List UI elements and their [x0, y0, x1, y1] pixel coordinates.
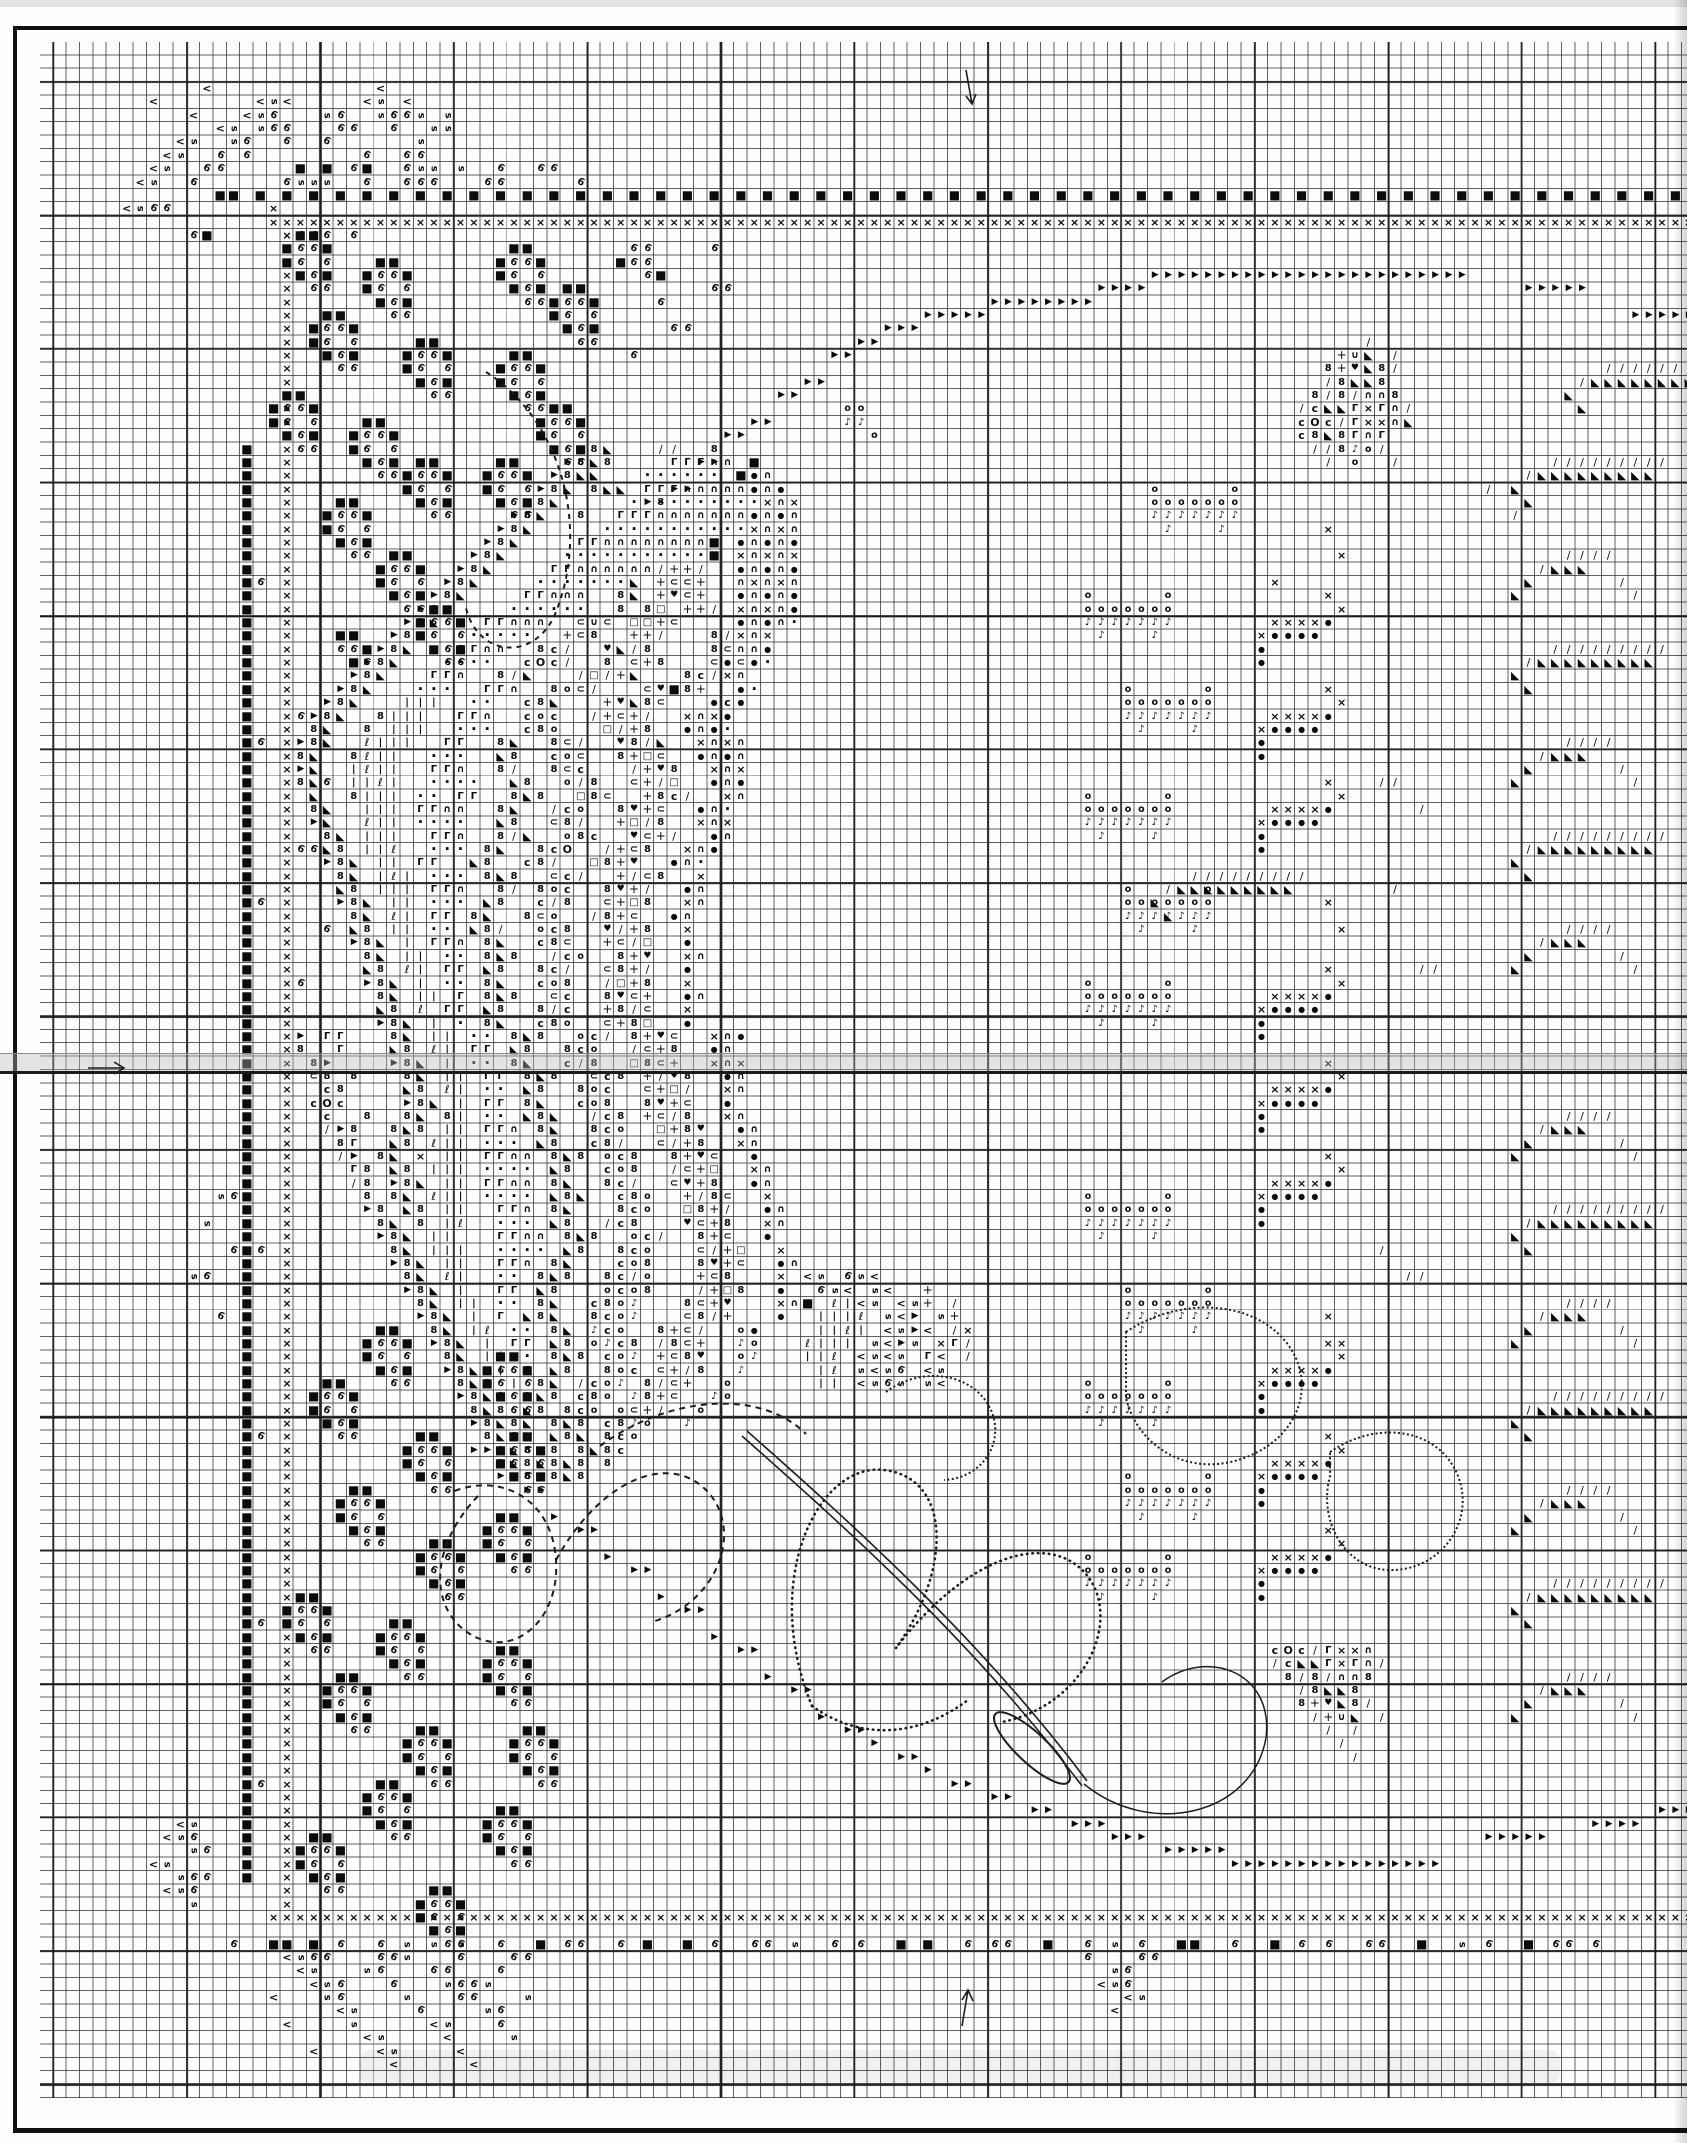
- filled-square-stitch: ■: [894, 1938, 907, 1951]
- dot-stitch: ·: [654, 469, 667, 482]
- plus-stitch: +: [641, 1404, 654, 1417]
- page-seam-band: [0, 1054, 1687, 1071]
- corner-triangle-stitch: ◣: [400, 1244, 413, 1257]
- slash-stitch: /: [1642, 643, 1655, 656]
- filled-square-stitch: ■: [921, 189, 934, 202]
- c-stitch: c: [1322, 416, 1335, 429]
- corner-triangle-stitch: ◣: [1575, 1404, 1588, 1417]
- note-stitch: ♪: [1161, 616, 1174, 629]
- cross-stitch: ×: [414, 216, 427, 229]
- slash-stitch: /: [1562, 1484, 1575, 1497]
- bar-stitch: |: [814, 1364, 827, 1377]
- note-stitch: ♪: [841, 416, 854, 429]
- corner-triangle-stitch: ◣: [1549, 1684, 1562, 1697]
- c-stitch: c: [614, 1337, 627, 1350]
- open-square-stitch: □: [681, 1203, 694, 1216]
- six-curl-stitch: 6: [318, 133, 336, 151]
- cross-stitch: ×: [280, 496, 293, 509]
- slash-stitch: /: [614, 923, 627, 936]
- cross-stitch: ×: [280, 1644, 293, 1657]
- gamma-stitch: Γ: [441, 1003, 454, 1016]
- filled-dot-stitch: ●: [761, 563, 774, 576]
- corner-triangle-stitch: ◣: [1535, 1591, 1548, 1604]
- cross-stitch: ×: [1282, 616, 1295, 629]
- open-c-stitch: ⊂: [547, 816, 560, 829]
- slash-stitch: /: [721, 1203, 734, 1216]
- plus-stitch: +: [614, 896, 627, 909]
- six-curl-stitch: 6: [492, 1935, 510, 1953]
- bar-stitch: |: [387, 710, 400, 723]
- figure-eight-stitch: 8: [334, 1137, 347, 1150]
- cross-stitch: ×: [948, 216, 961, 229]
- filled-square-stitch: ■: [240, 1604, 253, 1617]
- filled-square-stitch: ■: [240, 1591, 253, 1604]
- angle-stitch: <: [174, 135, 187, 148]
- slash-stitch: /: [1589, 643, 1602, 656]
- figure-eight-stitch: 8: [534, 696, 547, 709]
- figure-eight-stitch: 8: [534, 1270, 547, 1283]
- filled-square-stitch: ■: [481, 1364, 494, 1377]
- note-stitch: ♪: [1121, 1310, 1134, 1323]
- corner-triangle-stitch: ◣: [1575, 750, 1588, 763]
- corner-triangle-stitch: ◣: [481, 910, 494, 923]
- figure-eight-stitch: 8: [681, 669, 694, 682]
- small-right-triangle-stitch: ▶: [894, 1337, 907, 1350]
- cross-stitch: ×: [280, 603, 293, 616]
- figure-eight-stitch: 8: [507, 990, 520, 1003]
- angle-stitch: <: [934, 1350, 947, 1363]
- figure-eight-stitch: 8: [441, 589, 454, 602]
- corner-triangle-stitch: ◣: [547, 1110, 560, 1123]
- filled-dot-stitch: ●: [1255, 1217, 1268, 1230]
- plus-stitch: +: [654, 1083, 667, 1096]
- cross-stitch: ×: [694, 736, 707, 749]
- bar-stitch: |: [828, 1337, 841, 1350]
- open-square-stitch: □: [587, 669, 600, 682]
- bar-stitch: |: [467, 1297, 480, 1310]
- angle-stitch: <: [854, 1350, 867, 1363]
- plus-stitch: +: [694, 1270, 707, 1283]
- filled-dot-stitch: ●: [1308, 1097, 1321, 1110]
- slash-stitch: /: [1549, 1577, 1562, 1590]
- filled-square-stitch: ■: [414, 589, 427, 602]
- filled-square-stitch: ■: [414, 563, 427, 576]
- angle-stitch: <: [921, 1364, 934, 1377]
- plus-stitch: +: [721, 1244, 734, 1257]
- small-ring-stitch: o: [1201, 1484, 1214, 1497]
- cap-stitch: ∩: [1335, 1671, 1348, 1684]
- cross-stitch: ×: [1335, 1163, 1348, 1176]
- c-stitch: c: [601, 1110, 614, 1123]
- dot-stitch: ·: [654, 523, 667, 536]
- figure-eight-stitch: 8: [454, 576, 467, 589]
- note-stitch: ♪: [1135, 710, 1148, 723]
- small-right-triangle-stitch: ▶: [1348, 269, 1361, 282]
- filled-square-stitch: ■: [240, 1417, 253, 1430]
- corner-triangle-stitch: ◣: [1535, 469, 1548, 482]
- cross-stitch: ×: [1308, 1083, 1321, 1096]
- figure-eight-stitch: 8: [654, 790, 667, 803]
- cap-stitch: ∩: [708, 750, 721, 763]
- corner-triangle-stitch: ◣: [1242, 883, 1255, 896]
- slash-stitch: /: [721, 629, 734, 642]
- corner-triangle-stitch: ◣: [1188, 883, 1201, 896]
- c-stitch: c: [307, 1097, 320, 1110]
- corner-triangle-stitch: ◣: [1562, 1497, 1575, 1510]
- small-ring-stitch: o: [574, 950, 587, 963]
- corner-triangle-stitch: ◣: [1522, 1697, 1535, 1710]
- filled-square-stitch: ■: [240, 1097, 253, 1110]
- filled-square-stitch: ■: [200, 229, 213, 242]
- cup-stitch: ∪: [587, 616, 600, 629]
- cross-stitch: ×: [988, 216, 1001, 229]
- small-right-triangle-stitch: ▶: [1201, 1844, 1214, 1857]
- open-c-stitch: ⊂: [574, 683, 587, 696]
- cross-stitch: ×: [1255, 1564, 1268, 1577]
- slash-stitch: /: [1575, 736, 1588, 749]
- plus-stitch: +: [694, 589, 707, 602]
- corner-triangle-stitch: ◣: [1522, 763, 1535, 776]
- note-stitch: ♪: [1188, 509, 1201, 522]
- corner-triangle-stitch: ◣: [507, 803, 520, 816]
- filled-dot-stitch: ●: [1268, 1097, 1281, 1110]
- slash-stitch: /: [1602, 549, 1615, 562]
- corner-triangle-stitch: ◣: [1522, 1617, 1535, 1630]
- note-stitch: ♪: [1161, 1497, 1174, 1510]
- figure-eight-stitch: 8: [627, 1017, 640, 1030]
- bar-stitch: |: [400, 936, 413, 949]
- slash-stitch: /: [1575, 643, 1588, 656]
- filled-dot-stitch: ●: [1255, 1497, 1268, 1510]
- small-ring-stitch: o: [1188, 496, 1201, 509]
- six-curl-stitch: 6: [331, 1935, 349, 1953]
- small-right-triangle-stitch: ▶: [307, 816, 320, 829]
- six-curl-stitch: 6: [438, 1775, 456, 1793]
- loop-stitch: ℓ: [828, 1364, 841, 1377]
- slash-stitch: /: [681, 1083, 694, 1096]
- cross-stitch: ×: [761, 1911, 774, 1924]
- small-right-triangle-stitch: ▶: [694, 1604, 707, 1617]
- dot-stitch: ·: [681, 523, 694, 536]
- figure-eight-stitch: 8: [1335, 376, 1348, 389]
- corner-triangle-stitch: ◣: [387, 1137, 400, 1150]
- filled-square-stitch: ■: [1402, 189, 1415, 202]
- filled-square-stitch: ■: [240, 483, 253, 496]
- corner-triangle-stitch: ◣: [627, 576, 640, 589]
- filled-square-stitch: ■: [507, 282, 520, 295]
- small-right-triangle-stitch: ▶: [1255, 269, 1268, 282]
- filled-square-stitch: ■: [240, 1364, 253, 1377]
- cross-stitch: ×: [1295, 990, 1308, 1003]
- angle-stitch: <: [174, 1818, 187, 1831]
- corner-triangle-stitch: ◣: [547, 1377, 560, 1390]
- dot-stitch: ·: [414, 790, 427, 803]
- cap-stitch: ∩: [788, 523, 801, 536]
- note-stitch: ♪: [1108, 1003, 1121, 1016]
- corner-triangle-stitch: ◣: [547, 1270, 560, 1283]
- filled-square-stitch: ■: [240, 950, 253, 963]
- corner-triangle-stitch: ◣: [494, 816, 507, 829]
- small-right-triangle-stitch: ▶: [921, 1764, 934, 1777]
- slash-stitch: /: [1562, 1390, 1575, 1403]
- slash-stitch: /: [1655, 456, 1668, 469]
- dot-stitch: ·: [507, 629, 520, 642]
- c-stitch: c: [521, 723, 534, 736]
- note-stitch: ♪: [854, 416, 867, 429]
- filled-square-stitch: ■: [454, 1577, 467, 1590]
- cross-stitch: ×: [1201, 216, 1214, 229]
- six-curl-stitch: 6: [345, 1428, 363, 1446]
- slash-stitch: /: [601, 1217, 614, 1230]
- c-stitch: c: [667, 790, 680, 803]
- figure-eight-stitch: 8: [481, 1430, 494, 1443]
- plus-stitch: +: [681, 1190, 694, 1203]
- small-ring-stitch: o: [1081, 1390, 1094, 1403]
- figure-eight-stitch: 8: [481, 549, 494, 562]
- c-stitch: c: [534, 977, 547, 990]
- slash-stitch: /: [1535, 750, 1548, 763]
- filled-square-stitch: ■: [240, 1324, 253, 1337]
- filled-square-stitch: ■: [708, 189, 721, 202]
- angle-stitch: <: [854, 1377, 867, 1390]
- cross-stitch: ×: [841, 216, 854, 229]
- cross-stitch: ×: [708, 763, 721, 776]
- cross-stitch: ×: [1335, 1644, 1348, 1657]
- small-ring-stitch: o: [1081, 1564, 1094, 1577]
- six-curl-stitch: 6: [358, 1722, 376, 1740]
- cross-stitch: ×: [1629, 216, 1642, 229]
- corner-triangle-stitch: ◣: [547, 696, 560, 709]
- gamma-stitch: Γ: [494, 683, 507, 696]
- cross-stitch: ×: [1375, 1911, 1388, 1924]
- corner-triangle-stitch: ◣: [1322, 429, 1335, 442]
- corner-triangle-stitch: ◣: [1522, 1511, 1535, 1524]
- figure-eight-stitch: 8: [441, 1350, 454, 1363]
- cross-stitch: ×: [1255, 1911, 1268, 1924]
- small-ring-stitch: o: [1148, 1390, 1161, 1403]
- cap-stitch: ∩: [774, 589, 787, 602]
- figure-eight-stitch: 8: [547, 1017, 560, 1030]
- small-ring-stitch: o: [721, 1377, 734, 1390]
- figure-eight-stitch: 8: [414, 1217, 427, 1230]
- filled-dot-stitch: ●: [1255, 1017, 1268, 1030]
- cross-stitch: ×: [280, 950, 293, 963]
- figure-eight-stitch: 8: [400, 1137, 413, 1150]
- filled-square-stitch: ■: [240, 1644, 253, 1657]
- s-stitch: s: [908, 1297, 921, 1310]
- cross-stitch: ×: [1362, 1911, 1375, 1924]
- small-right-triangle-stitch: ▶: [494, 1470, 507, 1483]
- dot-stitch: ·: [494, 1083, 507, 1096]
- dot-stitch: ·: [641, 469, 654, 482]
- filled-square-stitch: ■: [708, 536, 721, 549]
- dot-stitch: ·: [521, 629, 534, 642]
- slash-stitch: /: [1629, 1203, 1642, 1216]
- plus-stitch: +: [708, 1203, 721, 1216]
- corner-triangle-stitch: ◣: [320, 723, 333, 736]
- filled-dot-stitch: ●: [708, 830, 721, 843]
- slash-stitch: /: [561, 643, 574, 656]
- corner-triangle-stitch: ◣: [614, 483, 627, 496]
- small-ring-stitch: o: [1148, 1564, 1161, 1577]
- open-square-stitch: □: [667, 776, 680, 789]
- open-c-stitch: ⊂: [601, 1017, 614, 1030]
- figure-eight-stitch: 8: [561, 1337, 574, 1350]
- cross-stitch: ×: [1268, 803, 1281, 816]
- slash-stitch: /: [667, 1163, 680, 1176]
- small-ring-stitch: o: [1135, 603, 1148, 616]
- heart-stitch: ♥: [1348, 362, 1361, 375]
- small-ring-stitch: o: [627, 1284, 640, 1297]
- six-curl-stitch: 6: [759, 1935, 777, 1953]
- figure-eight-stitch: 8: [641, 603, 654, 616]
- slash-stitch: /: [1589, 549, 1602, 562]
- dot-stitch: ·: [481, 629, 494, 642]
- figure-eight-stitch: 8: [587, 1123, 600, 1136]
- note-stitch: ♪: [627, 1417, 640, 1430]
- figure-eight-stitch: 8: [721, 1270, 734, 1283]
- filled-dot-stitch: ●: [748, 1150, 761, 1163]
- slash-stitch: /: [1295, 870, 1308, 883]
- filled-dot-stitch: ●: [1255, 656, 1268, 669]
- gamma-stitch: Γ: [414, 856, 427, 869]
- small-ring-stitch: o: [601, 1150, 614, 1163]
- small-right-triangle-stitch: ▶: [1415, 269, 1428, 282]
- cross-stitch: ×: [748, 1163, 761, 1176]
- six-curl-stitch: 6: [398, 1375, 416, 1393]
- small-ring-stitch: o: [1095, 603, 1108, 616]
- dot-stitch: ·: [641, 549, 654, 562]
- dot-stitch: ·: [454, 776, 467, 789]
- filled-square-stitch: ■: [494, 1804, 507, 1817]
- note-stitch: ♪: [1148, 816, 1161, 829]
- figure-eight-stitch: 8: [387, 643, 400, 656]
- small-ring-stitch: o: [1228, 496, 1241, 509]
- six-curl-stitch: 6: [679, 320, 697, 338]
- filled-square-stitch: ■: [1188, 1938, 1201, 1951]
- filled-dot-stitch: ●: [1268, 1470, 1281, 1483]
- small-right-triangle-stitch: ▶: [1068, 1818, 1081, 1831]
- s-stitch: s: [320, 176, 333, 189]
- cross-stitch: ×: [1295, 1551, 1308, 1564]
- corner-triangle-stitch: ◣: [347, 856, 360, 869]
- cap-stitch: ∩: [734, 576, 747, 589]
- figure-eight-stitch: 8: [534, 1083, 547, 1096]
- heart-stitch: ♥: [667, 589, 680, 602]
- figure-eight-stitch: 8: [561, 816, 574, 829]
- dot-stitch: ·: [574, 603, 587, 616]
- filled-square-stitch: ■: [1375, 189, 1388, 202]
- note-stitch: ♪: [601, 1337, 614, 1350]
- cap-stitch: ∩: [708, 803, 721, 816]
- six-curl-stitch: 6: [398, 1829, 416, 1847]
- cross-stitch: ×: [868, 216, 881, 229]
- slash-stitch: /: [627, 1270, 640, 1283]
- heart-stitch: ♥: [614, 990, 627, 1003]
- slash-stitch: /: [1642, 362, 1655, 375]
- slash-stitch: /: [1575, 376, 1588, 389]
- note-stitch: ♪: [1081, 1217, 1094, 1230]
- cross-stitch: ×: [748, 523, 761, 536]
- corner-triangle-stitch: ◣: [507, 536, 520, 549]
- angle-stitch: <: [881, 1284, 894, 1297]
- cross-stitch: ×: [280, 1684, 293, 1697]
- slash-stitch: /: [574, 776, 587, 789]
- filled-square-stitch: ■: [240, 536, 253, 549]
- figure-eight-stitch: 8: [1308, 389, 1321, 402]
- figure-eight-stitch: 8: [547, 1150, 560, 1163]
- cross-stitch: ×: [1362, 402, 1375, 415]
- cross-stitch: ×: [748, 1911, 761, 1924]
- figure-eight-stitch: 8: [641, 1257, 654, 1270]
- corner-triangle-stitch: ◣: [387, 1163, 400, 1176]
- bar-stitch: |: [441, 1137, 454, 1150]
- figure-eight-stitch: 8: [601, 990, 614, 1003]
- figure-eight-stitch: 8: [641, 923, 654, 936]
- bar-stitch: |: [387, 723, 400, 736]
- small-ring-stitch: o: [1161, 803, 1174, 816]
- dot-stitch: ·: [441, 923, 454, 936]
- filled-square-stitch: ■: [414, 1631, 427, 1644]
- slash-stitch: /: [1295, 1671, 1308, 1684]
- dot-stitch: ·: [467, 723, 480, 736]
- s-stitch: s: [1135, 1991, 1148, 2004]
- corner-triangle-stitch: ◣: [1575, 402, 1588, 415]
- small-ring-stitch: o: [614, 1364, 627, 1377]
- c-stitch: c: [534, 936, 547, 949]
- corner-triangle-stitch: ◣: [1562, 389, 1575, 402]
- figure-eight-stitch: 8: [574, 1417, 587, 1430]
- filled-square-stitch: ■: [521, 469, 534, 482]
- filled-square-stitch: ■: [1055, 189, 1068, 202]
- corner-triangle-stitch: ◣: [374, 950, 387, 963]
- cross-stitch: ×: [280, 1831, 293, 1844]
- cross-stitch: ×: [280, 229, 293, 242]
- filled-square-stitch: ■: [1415, 1938, 1428, 1951]
- corner-triangle-stitch: ◣: [1615, 1404, 1628, 1417]
- small-right-triangle-stitch: ▶: [1108, 1831, 1121, 1844]
- scanned-pattern-page: <<<<s<<s<<<s6s6s66ss<ss66666ss<ss666s<s6…: [0, 0, 1687, 2143]
- figure-eight-stitch: 8: [614, 1203, 627, 1216]
- small-ring-stitch: o: [1095, 1203, 1108, 1216]
- figure-eight-stitch: 8: [641, 896, 654, 909]
- slash-stitch: /: [708, 603, 721, 616]
- bar-stitch: |: [441, 1030, 454, 1043]
- cross-stitch: ×: [1041, 1911, 1054, 1924]
- small-ring-stitch: o: [1121, 683, 1134, 696]
- slash-stitch: /: [1602, 456, 1615, 469]
- cap-stitch: ∩: [748, 643, 761, 656]
- filled-square-stitch: ■: [481, 1831, 494, 1844]
- figure-eight-stitch: 8: [374, 990, 387, 1003]
- bar-stitch: |: [454, 1123, 467, 1136]
- slash-stitch: /: [1562, 1203, 1575, 1216]
- six-curl-stitch: 6: [438, 387, 456, 405]
- dot-stitch: ·: [667, 549, 680, 562]
- filled-dot-stitch: ●: [748, 656, 761, 669]
- page-border-top: [13, 26, 1687, 30]
- figure-eight-stitch: 8: [334, 856, 347, 869]
- bar-stitch: |: [441, 1177, 454, 1190]
- filled-square-stitch: ■: [761, 189, 774, 202]
- plus-stitch: +: [654, 589, 667, 602]
- figure-eight-stitch: 8: [494, 669, 507, 682]
- figure-eight-stitch: 8: [547, 1137, 560, 1150]
- note-stitch: ♪: [1161, 509, 1174, 522]
- dot-stitch: ·: [427, 790, 440, 803]
- dot-stitch: ·: [507, 1137, 520, 1150]
- note-stitch: ♪: [1215, 523, 1228, 536]
